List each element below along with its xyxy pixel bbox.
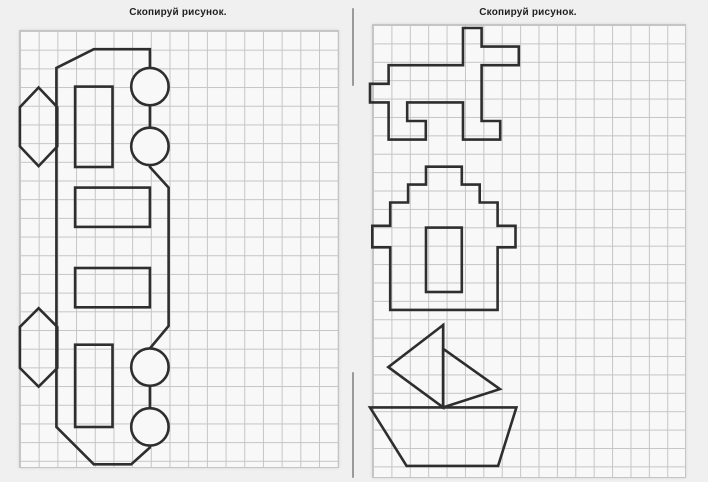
panel-divider-top (352, 8, 354, 86)
left-grid-paper (19, 30, 339, 468)
panel-divider-bottom (352, 372, 354, 478)
left-panel-title: Скопируй рисунок. (19, 7, 337, 18)
right-grid-paper (372, 24, 686, 478)
right-panel-title: Скопируй рисунок. (372, 7, 684, 18)
worksheet-page: Скопируй рисунок. Скопируй рисунок. (0, 0, 708, 482)
